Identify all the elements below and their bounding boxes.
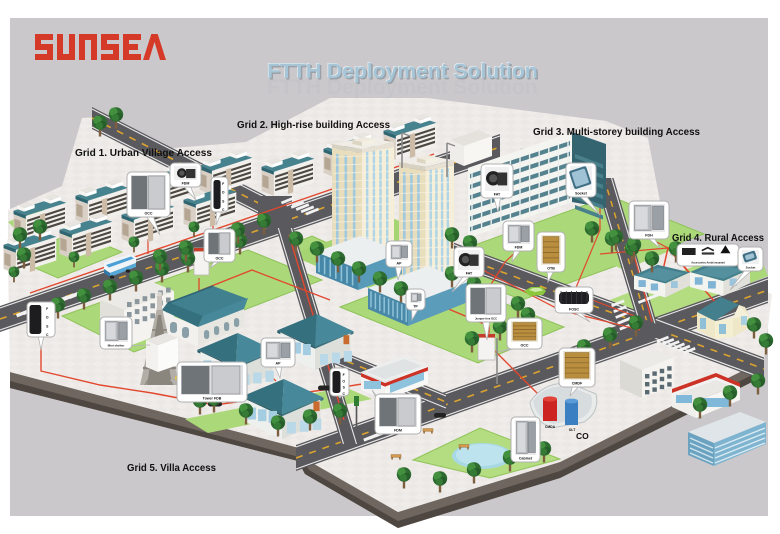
svg-text:Jumper free OCC: Jumper free OCC <box>475 316 497 320</box>
svg-text:Mini shelter: Mini shelter <box>108 343 126 347</box>
svg-text:CMDF: CMDF <box>572 381 583 385</box>
svg-text:Tower FDB: Tower FDB <box>203 396 222 400</box>
svg-text:Grid 5. Villa Access: Grid 5. Villa Access <box>127 462 216 474</box>
svg-text:Grid 4. Rural Access: Grid 4. Rural Access <box>672 232 764 244</box>
svg-text:Grid 3. Multi-storey building: Grid 3. Multi-storey building Access <box>533 126 700 138</box>
svg-text:Cabinet: Cabinet <box>519 456 533 460</box>
svg-text:TP: TP <box>413 304 418 308</box>
svg-text:FAT: FAT <box>466 271 473 275</box>
svg-text:O: O <box>46 316 49 320</box>
svg-text:Socket: Socket <box>746 265 756 269</box>
svg-text:Accessories Aerial mounted: Accessories Aerial mounted <box>691 261 725 264</box>
svg-text:FOSC: FOSC <box>569 307 579 311</box>
svg-text:AP: AP <box>397 261 403 265</box>
svg-text:OCC: OCC <box>216 256 224 260</box>
svg-text:FTTH Deployment Solution: FTTH Deployment Solution <box>267 75 538 99</box>
svg-text:OCC: OCC <box>521 343 529 347</box>
svg-text:F: F <box>46 307 48 311</box>
svg-text:FDM: FDM <box>394 428 402 432</box>
svg-text:FDM: FDM <box>182 181 190 185</box>
svg-text:OTB: OTB <box>547 266 555 270</box>
svg-text:OCC: OCC <box>145 211 153 215</box>
svg-text:FDM: FDM <box>515 245 523 249</box>
svg-text:O: O <box>222 191 225 195</box>
svg-text:F: F <box>343 373 345 377</box>
svg-text:Socket: Socket <box>575 191 588 195</box>
svg-text:CO: CO <box>576 431 589 441</box>
svg-text:Grid 2. High-rise building Acc: Grid 2. High-rise building Access <box>237 119 390 131</box>
svg-text:F: F <box>222 182 224 186</box>
svg-text:Grid 1. Urban Village Access: Grid 1. Urban Village Access <box>75 147 212 159</box>
svg-text:FDH: FDH <box>645 233 653 237</box>
svg-text:O: O <box>342 379 345 383</box>
svg-text:FAT: FAT <box>494 192 501 196</box>
svg-text:CMDA: CMDA <box>545 425 556 429</box>
svg-text:AP: AP <box>276 361 282 365</box>
